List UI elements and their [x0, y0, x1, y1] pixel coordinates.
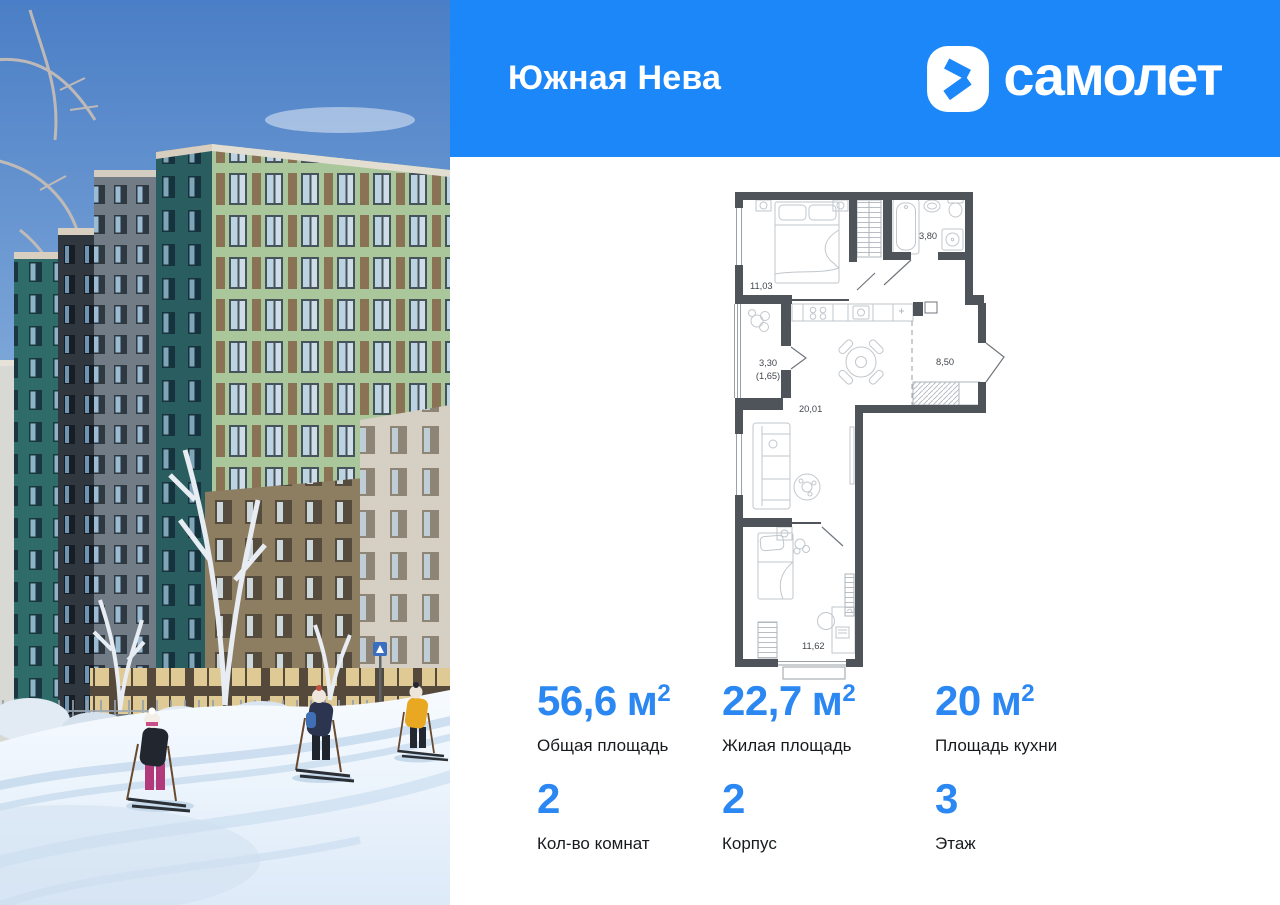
- info-panel: Южная Нева самолет: [450, 0, 1280, 905]
- room-label-bedroom-1: 11,03: [750, 281, 773, 291]
- spec-building-value: 2: [722, 777, 777, 821]
- brand-name: самолет: [1003, 48, 1222, 110]
- spec-rooms-count-value: 2: [537, 777, 650, 821]
- plan-furniture: [749, 197, 981, 658]
- spec-kitchen-area-label: Площадь кухни: [935, 736, 1057, 756]
- apartment-card: Южная Нева самолет: [0, 0, 1280, 905]
- samolet-logo-icon: [926, 46, 990, 112]
- building-photo: [0, 0, 450, 905]
- spec-floor: 3 Этаж: [935, 777, 976, 854]
- room-label-bedroom-2: 11,62: [802, 641, 825, 651]
- spec-total-area: 56,6м2 Общая площадь: [537, 672, 670, 756]
- brand-logo: самолет: [926, 46, 1222, 112]
- spec-rooms-count-label: Кол-во комнат: [537, 834, 650, 854]
- spec-kitchen-area: 20м2 Площадь кухни: [935, 672, 1057, 756]
- spec-floor-value: 3: [935, 777, 976, 821]
- spec-building: 2 Корпус: [722, 777, 777, 854]
- room-label-hallway: 8,50: [936, 357, 954, 367]
- floor-plan: 11,03 3,80 3,30 (1,65) 20,01 8,50 11,62: [733, 190, 1011, 684]
- room-label-kitchen-living: 20,01: [799, 404, 822, 414]
- spec-total-area-value: 56,6: [537, 677, 617, 724]
- spec-total-area-label: Общая площадь: [537, 736, 670, 756]
- spec-floor-label: Этаж: [935, 834, 976, 854]
- spec-kitchen-area-value: 20: [935, 677, 981, 724]
- header: Южная Нева самолет: [450, 0, 1280, 157]
- room-label-bathroom: 3,80: [919, 231, 937, 241]
- spec-building-label: Корпус: [722, 834, 777, 854]
- spec-living-area: 22,7м2 Жилая площадь: [722, 672, 855, 756]
- plan-walls: [735, 192, 986, 667]
- room-label-balcony: 3,30: [759, 358, 777, 368]
- project-title: Южная Нева: [508, 59, 721, 98]
- spec-living-area-value: 22,7: [722, 677, 802, 724]
- spec-rooms-count: 2 Кол-во комнат: [537, 777, 650, 854]
- room-label-balcony-reduced: (1,65): [756, 371, 780, 381]
- spec-living-area-label: Жилая площадь: [722, 736, 855, 756]
